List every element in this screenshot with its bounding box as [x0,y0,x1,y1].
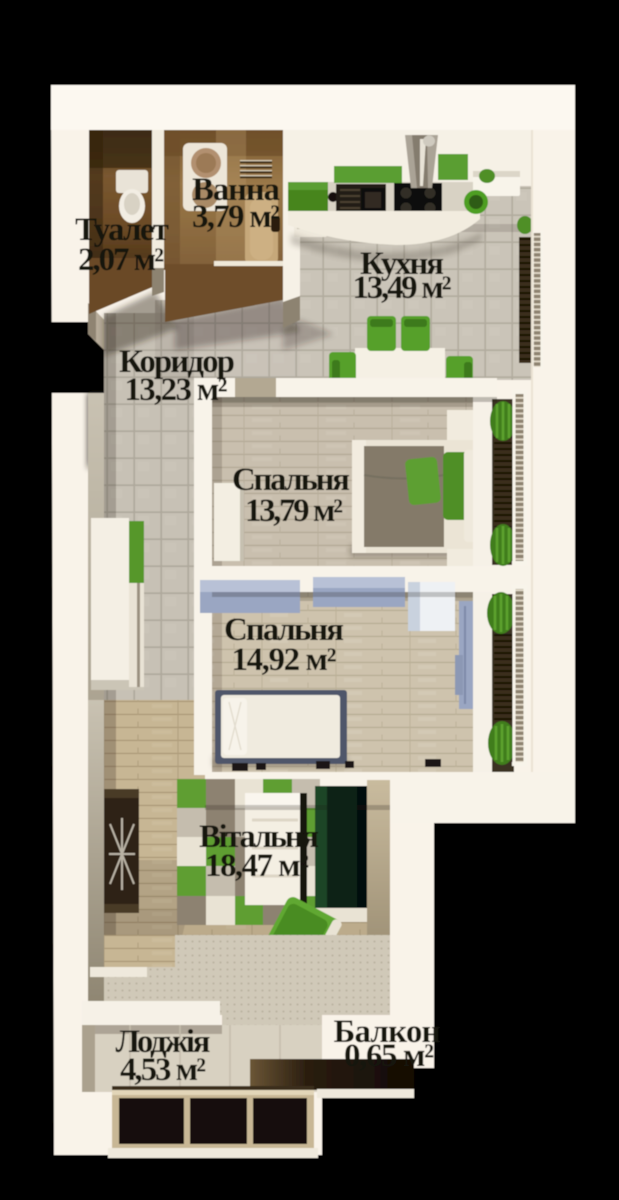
svg-text:0,65 м²: 0,65 м² [344,1038,434,1074]
svg-text:2,07 м²: 2,07 м² [78,242,164,278]
svg-text:13,79 м²: 13,79 м² [245,493,343,529]
svg-text:13,49 м²: 13,49 м² [353,270,452,306]
svg-text:18,47 м²: 18,47 м² [205,848,309,884]
svg-text:13,23 м²: 13,23 м² [125,372,228,408]
svg-text:4,53 м²: 4,53 м² [120,1052,206,1088]
svg-text:14,92 м²: 14,92 м² [232,642,337,678]
svg-text:3,79 м²: 3,79 м² [192,199,280,235]
